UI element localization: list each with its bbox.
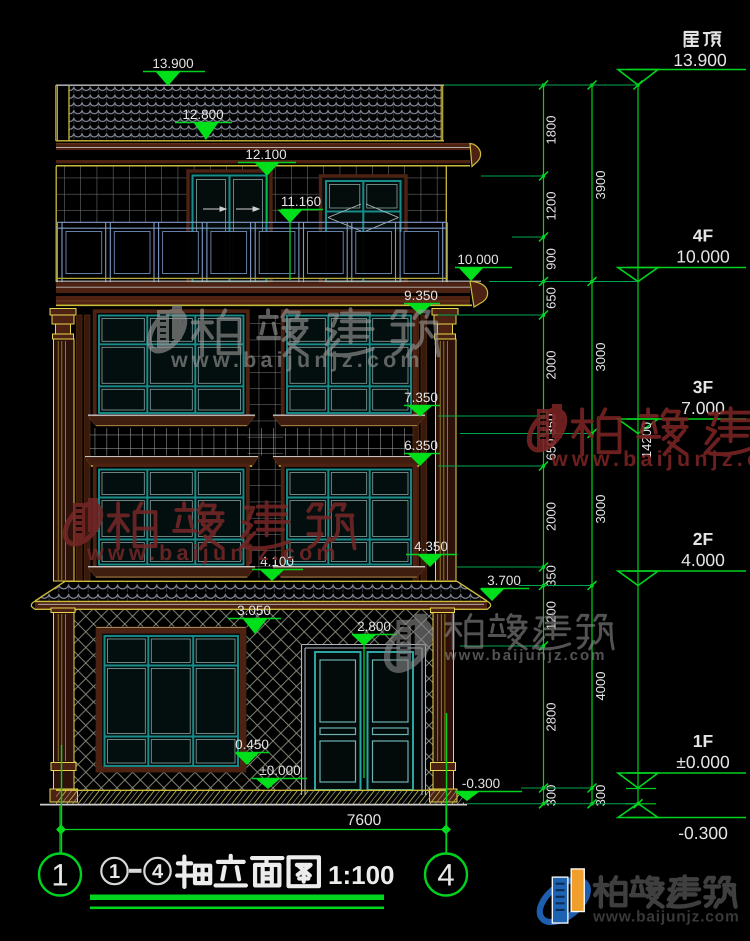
svg-text:900: 900 (544, 248, 559, 270)
svg-text:±0.000: ±0.000 (259, 763, 300, 778)
svg-text:1200: 1200 (544, 601, 559, 630)
svg-text:650: 650 (544, 287, 559, 309)
svg-text:2000: 2000 (544, 351, 559, 380)
svg-text:4.350: 4.350 (414, 539, 448, 554)
svg-text:10.000: 10.000 (676, 247, 730, 267)
svg-text:www.baijunjz.com: www.baijunjz.com (592, 909, 740, 926)
svg-text:1:100: 1:100 (328, 860, 395, 890)
svg-text:300: 300 (593, 785, 608, 807)
svg-text:13.900: 13.900 (152, 56, 193, 71)
svg-text:12.800: 12.800 (182, 107, 223, 122)
svg-text:3F: 3F (693, 377, 714, 397)
svg-text:0.450: 0.450 (235, 737, 269, 752)
svg-text:13.900: 13.900 (673, 50, 727, 70)
svg-text:10.000: 10.000 (457, 252, 498, 267)
svg-text:3000: 3000 (593, 495, 608, 524)
svg-text:11.160: 11.160 (281, 194, 321, 209)
svg-text:www.baijunjz.com: www.baijunjz.com (444, 647, 606, 664)
svg-text:4: 4 (437, 858, 454, 893)
svg-text:1: 1 (51, 858, 68, 893)
svg-text:12.100: 12.100 (245, 147, 286, 162)
svg-text:4000: 4000 (593, 672, 608, 701)
svg-text:4: 4 (152, 861, 164, 883)
svg-text:1200: 1200 (544, 192, 559, 221)
svg-text:4.000: 4.000 (681, 550, 725, 570)
svg-text:1: 1 (109, 861, 120, 883)
svg-text:7600: 7600 (347, 812, 382, 829)
svg-text:4F: 4F (693, 226, 714, 246)
svg-text:9.350: 9.350 (404, 288, 438, 303)
svg-text:3000: 3000 (593, 343, 608, 372)
svg-text:2F: 2F (693, 529, 714, 549)
svg-text:1800: 1800 (544, 116, 559, 145)
svg-text:350: 350 (544, 565, 559, 587)
svg-text:3.700: 3.700 (487, 573, 521, 588)
svg-text:2.800: 2.800 (357, 619, 391, 634)
svg-text:2800: 2800 (544, 703, 559, 732)
svg-text:7.350: 7.350 (404, 390, 438, 405)
svg-text:1F: 1F (693, 731, 714, 751)
svg-text:3.050: 3.050 (237, 603, 271, 618)
svg-text:-0.300: -0.300 (462, 776, 500, 791)
svg-text:6.350: 6.350 (404, 438, 438, 453)
svg-text:3900: 3900 (593, 171, 608, 200)
svg-text:±0.000: ±0.000 (676, 752, 730, 772)
svg-text:-0.300: -0.300 (678, 823, 728, 843)
svg-text:2000: 2000 (544, 502, 559, 531)
